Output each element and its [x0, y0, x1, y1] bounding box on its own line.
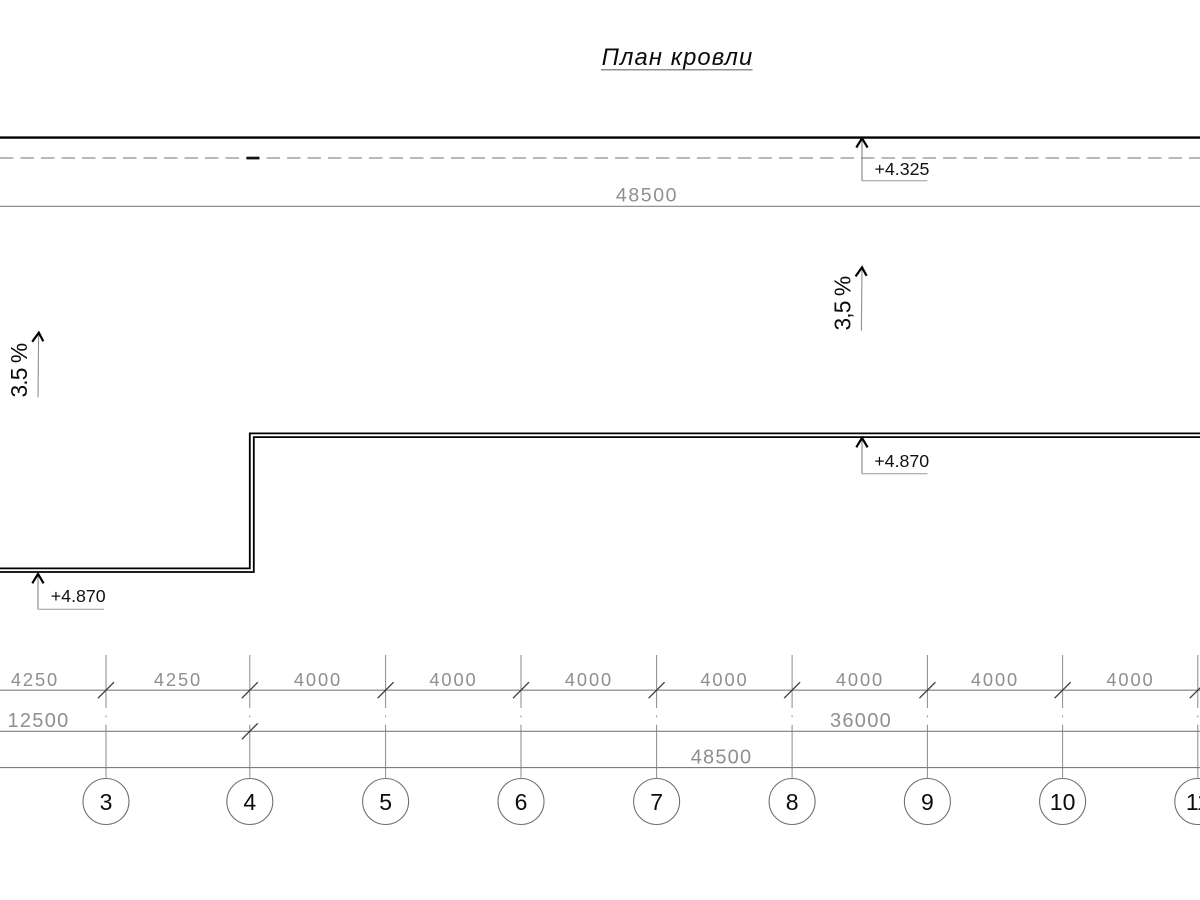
svg-text:4250: 4250 [154, 669, 202, 690]
svg-text:48500: 48500 [691, 747, 753, 769]
svg-text:+4.325: +4.325 [875, 159, 930, 179]
svg-text:4000: 4000 [565, 669, 613, 690]
svg-text:8: 8 [786, 789, 799, 815]
svg-text:4000: 4000 [971, 669, 1019, 690]
svg-text:+4.870: +4.870 [874, 451, 929, 471]
svg-text:4250: 4250 [11, 669, 59, 690]
svg-text:48500: 48500 [616, 185, 678, 207]
svg-text:3,5 %: 3,5 % [830, 276, 856, 330]
svg-text:11: 11 [1186, 789, 1200, 815]
svg-text:+4.870: +4.870 [51, 586, 106, 606]
svg-text:План кровли: План кровли [602, 44, 754, 71]
svg-text:4000: 4000 [1106, 669, 1154, 690]
svg-text:12500: 12500 [7, 710, 69, 732]
svg-text:4000: 4000 [836, 669, 884, 690]
svg-text:6: 6 [515, 789, 528, 815]
svg-text:5: 5 [379, 789, 392, 815]
svg-text:10: 10 [1050, 789, 1076, 815]
svg-text:9: 9 [921, 789, 934, 815]
svg-text:7: 7 [650, 789, 663, 815]
svg-text:4000: 4000 [429, 669, 477, 690]
svg-text:3: 3 [100, 789, 113, 815]
svg-text:4: 4 [243, 789, 256, 815]
svg-text:36000: 36000 [830, 710, 892, 732]
svg-text:4000: 4000 [700, 669, 748, 690]
svg-text:3.5 %: 3.5 % [6, 343, 32, 397]
svg-text:4000: 4000 [294, 669, 342, 690]
